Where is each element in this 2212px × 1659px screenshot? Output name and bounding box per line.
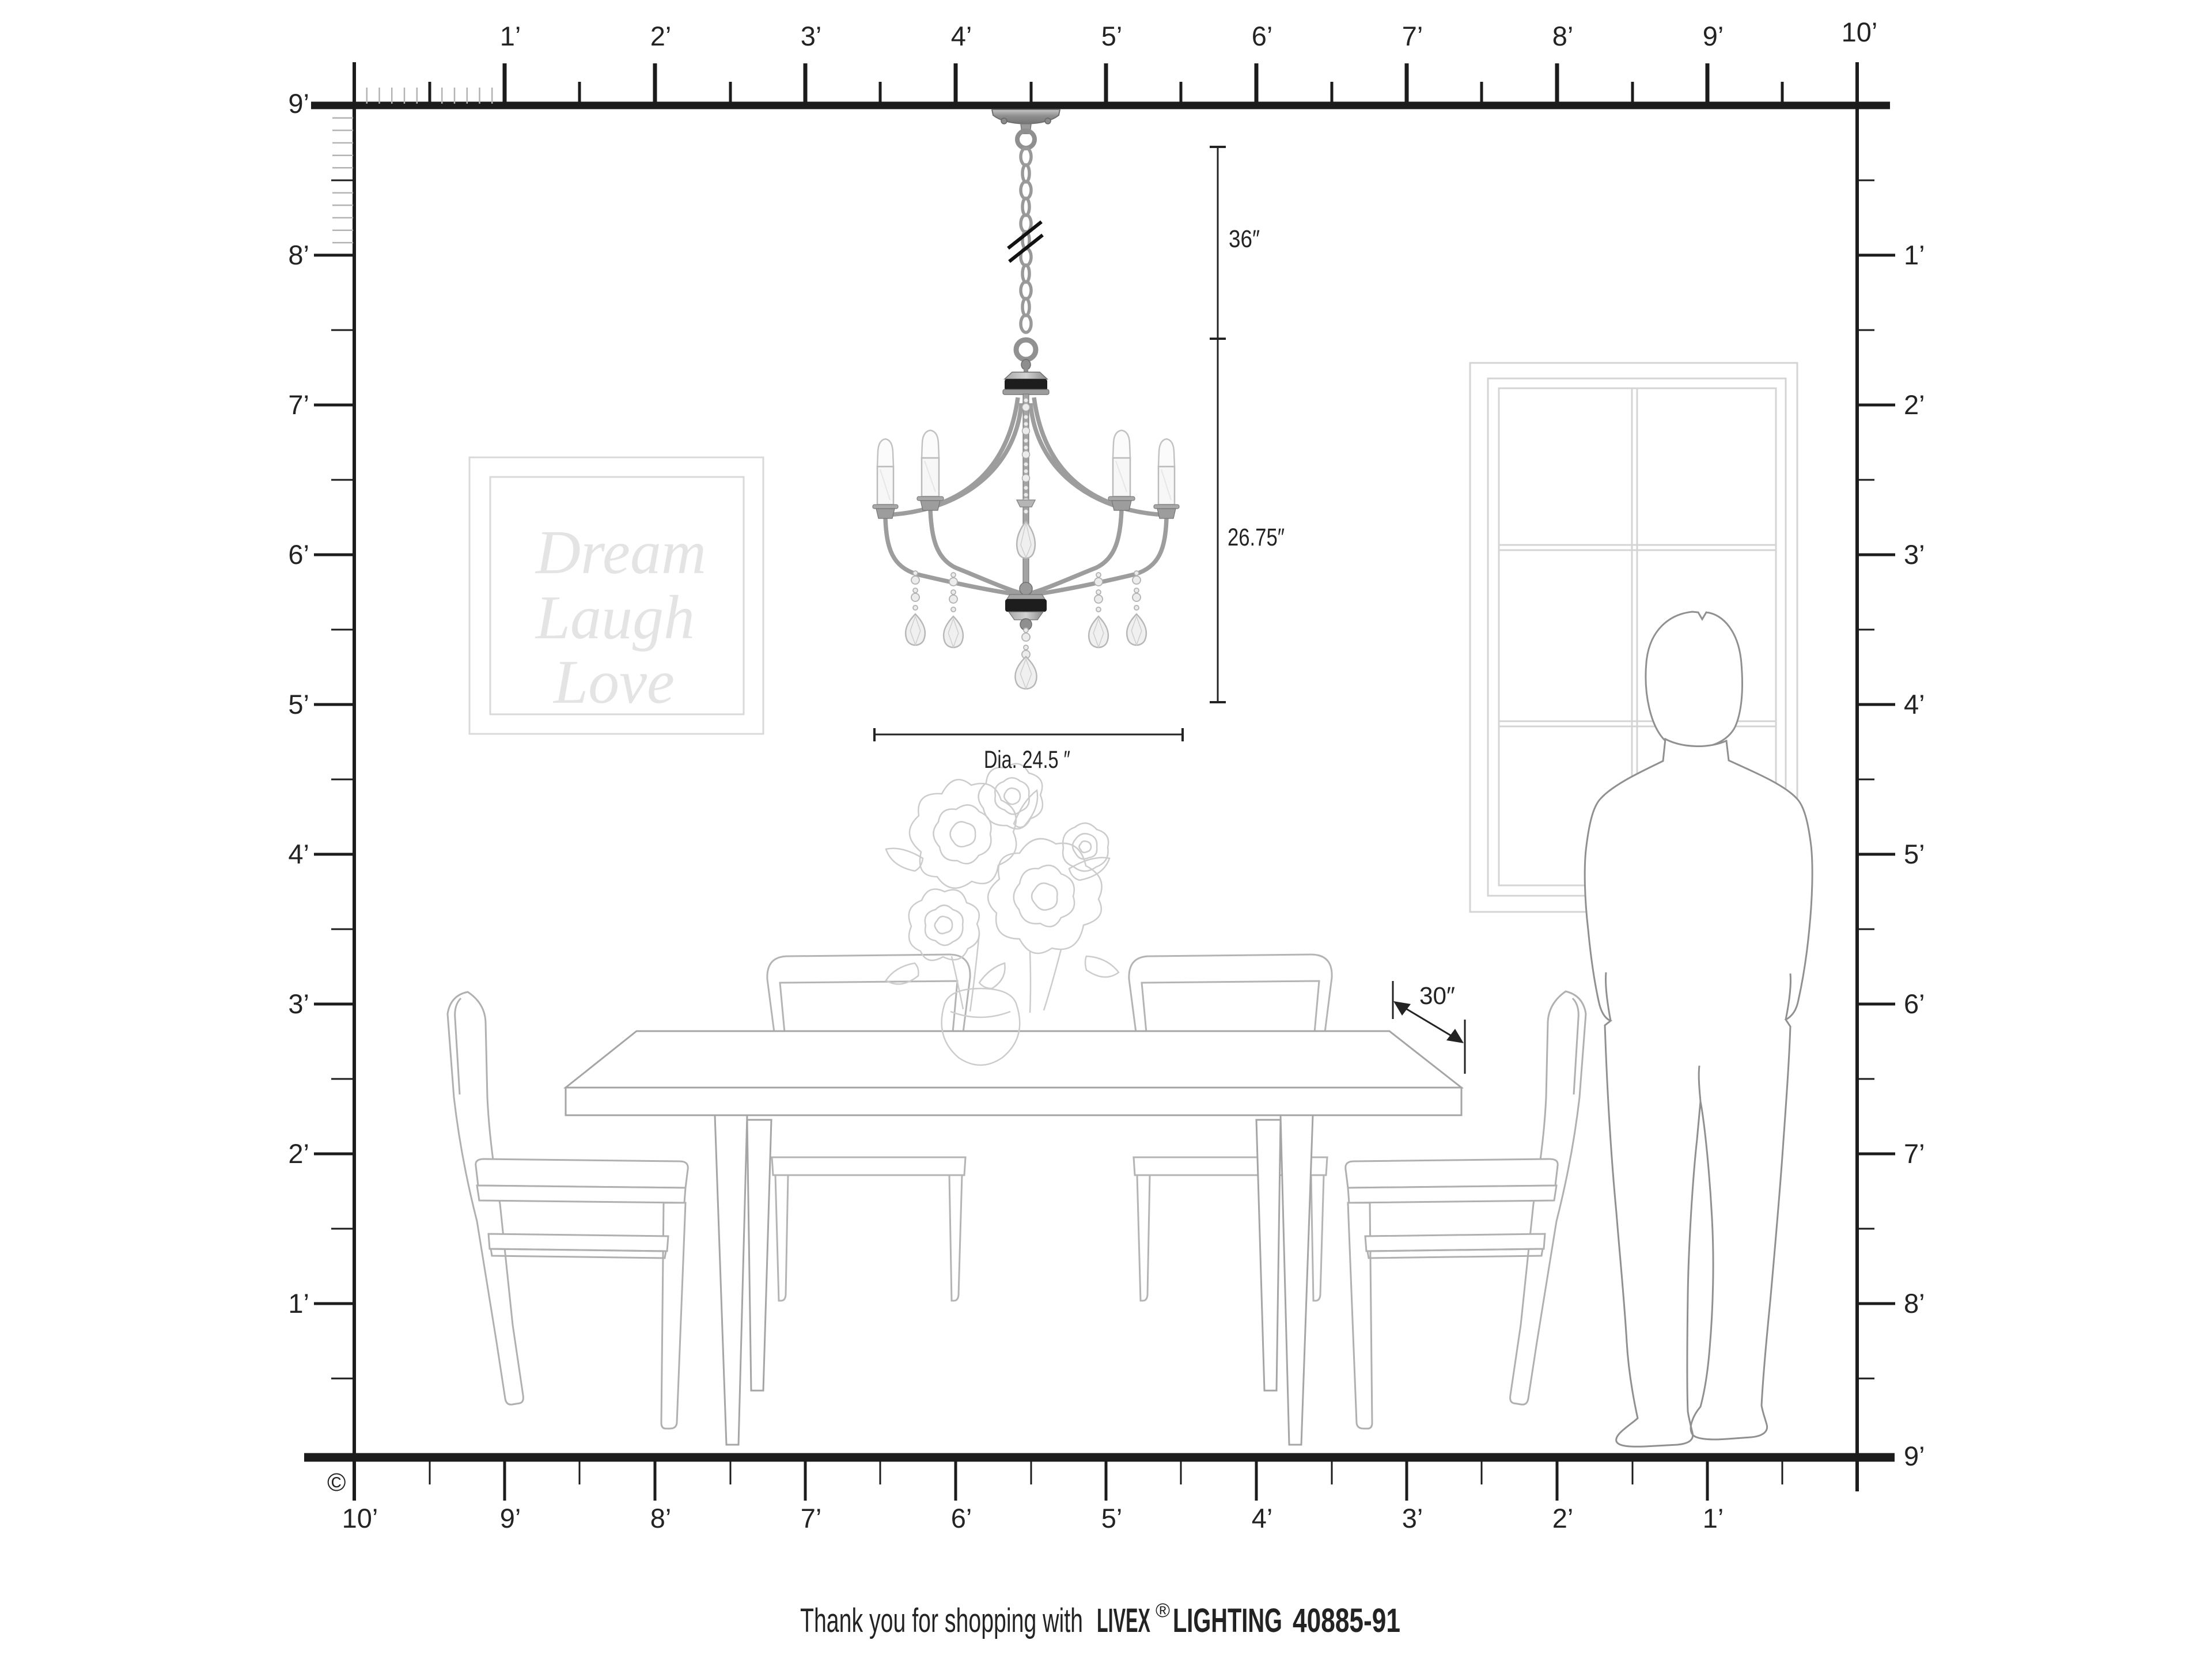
- svg-text:LIGHTING: LIGHTING: [1173, 1602, 1282, 1639]
- svg-text:3’: 3’: [1904, 539, 1925, 570]
- svg-text:1’: 1’: [288, 1288, 309, 1319]
- svg-text:4’: 4’: [1252, 1503, 1273, 1533]
- svg-text:6’: 6’: [951, 1503, 972, 1533]
- svg-text:30″: 30″: [1419, 982, 1455, 1010]
- svg-text:10’: 10’: [342, 1503, 378, 1533]
- svg-text:LIVEX: LIVEX: [1097, 1602, 1150, 1639]
- svg-text:4’: 4’: [1904, 689, 1925, 719]
- svg-text:Thank you for shopping with: Thank you for shopping with: [800, 1602, 1083, 1639]
- svg-text:2’: 2’: [1904, 389, 1925, 420]
- svg-text:4’: 4’: [288, 839, 309, 869]
- svg-text:Dream: Dream: [535, 518, 706, 587]
- svg-text:3’: 3’: [801, 21, 822, 51]
- svg-text:10’: 10’: [1842, 17, 1878, 47]
- svg-text:8’: 8’: [650, 1503, 672, 1533]
- svg-text:5’: 5’: [288, 689, 309, 719]
- svg-text:1’: 1’: [500, 21, 521, 51]
- svg-text:6’: 6’: [1252, 21, 1273, 51]
- svg-text:6’: 6’: [288, 539, 309, 570]
- svg-text:5’: 5’: [1101, 1503, 1123, 1533]
- svg-text:©: ©: [327, 1468, 346, 1497]
- svg-text:1’: 1’: [1703, 1503, 1724, 1533]
- svg-text:36″: 36″: [1229, 225, 1260, 253]
- svg-text:8’: 8’: [1552, 21, 1574, 51]
- svg-text:8’: 8’: [288, 240, 309, 270]
- svg-text:1’: 1’: [1904, 240, 1925, 270]
- svg-text:8’: 8’: [1904, 1288, 1925, 1319]
- svg-text:2’: 2’: [1552, 1503, 1574, 1533]
- svg-text:3’: 3’: [1402, 1503, 1423, 1533]
- svg-text:7’: 7’: [288, 389, 309, 420]
- svg-text:5’: 5’: [1101, 21, 1123, 51]
- svg-text:2’: 2’: [650, 21, 672, 51]
- svg-text:9’: 9’: [1904, 1441, 1925, 1471]
- svg-text:®: ®: [1156, 1600, 1170, 1622]
- svg-text:Laugh: Laugh: [535, 584, 695, 652]
- svg-text:7’: 7’: [801, 1503, 822, 1533]
- svg-text:Dia. 24.5 ″: Dia. 24.5 ″: [984, 746, 1070, 774]
- svg-text:3’: 3’: [288, 988, 309, 1019]
- svg-text:4’: 4’: [951, 21, 972, 51]
- svg-text:6’: 6’: [1904, 988, 1925, 1019]
- svg-text:9’: 9’: [500, 1503, 521, 1533]
- svg-text:40885-91: 40885-91: [1293, 1602, 1400, 1639]
- svg-text:9’: 9’: [1703, 21, 1724, 51]
- svg-text:5’: 5’: [1904, 839, 1925, 869]
- svg-text:9’: 9’: [288, 88, 309, 119]
- svg-text:Love: Love: [552, 648, 675, 717]
- svg-text:7’: 7’: [1904, 1138, 1925, 1169]
- svg-text:2’: 2’: [288, 1138, 309, 1169]
- svg-text:26.75″: 26.75″: [1228, 524, 1285, 551]
- svg-text:7’: 7’: [1402, 21, 1423, 51]
